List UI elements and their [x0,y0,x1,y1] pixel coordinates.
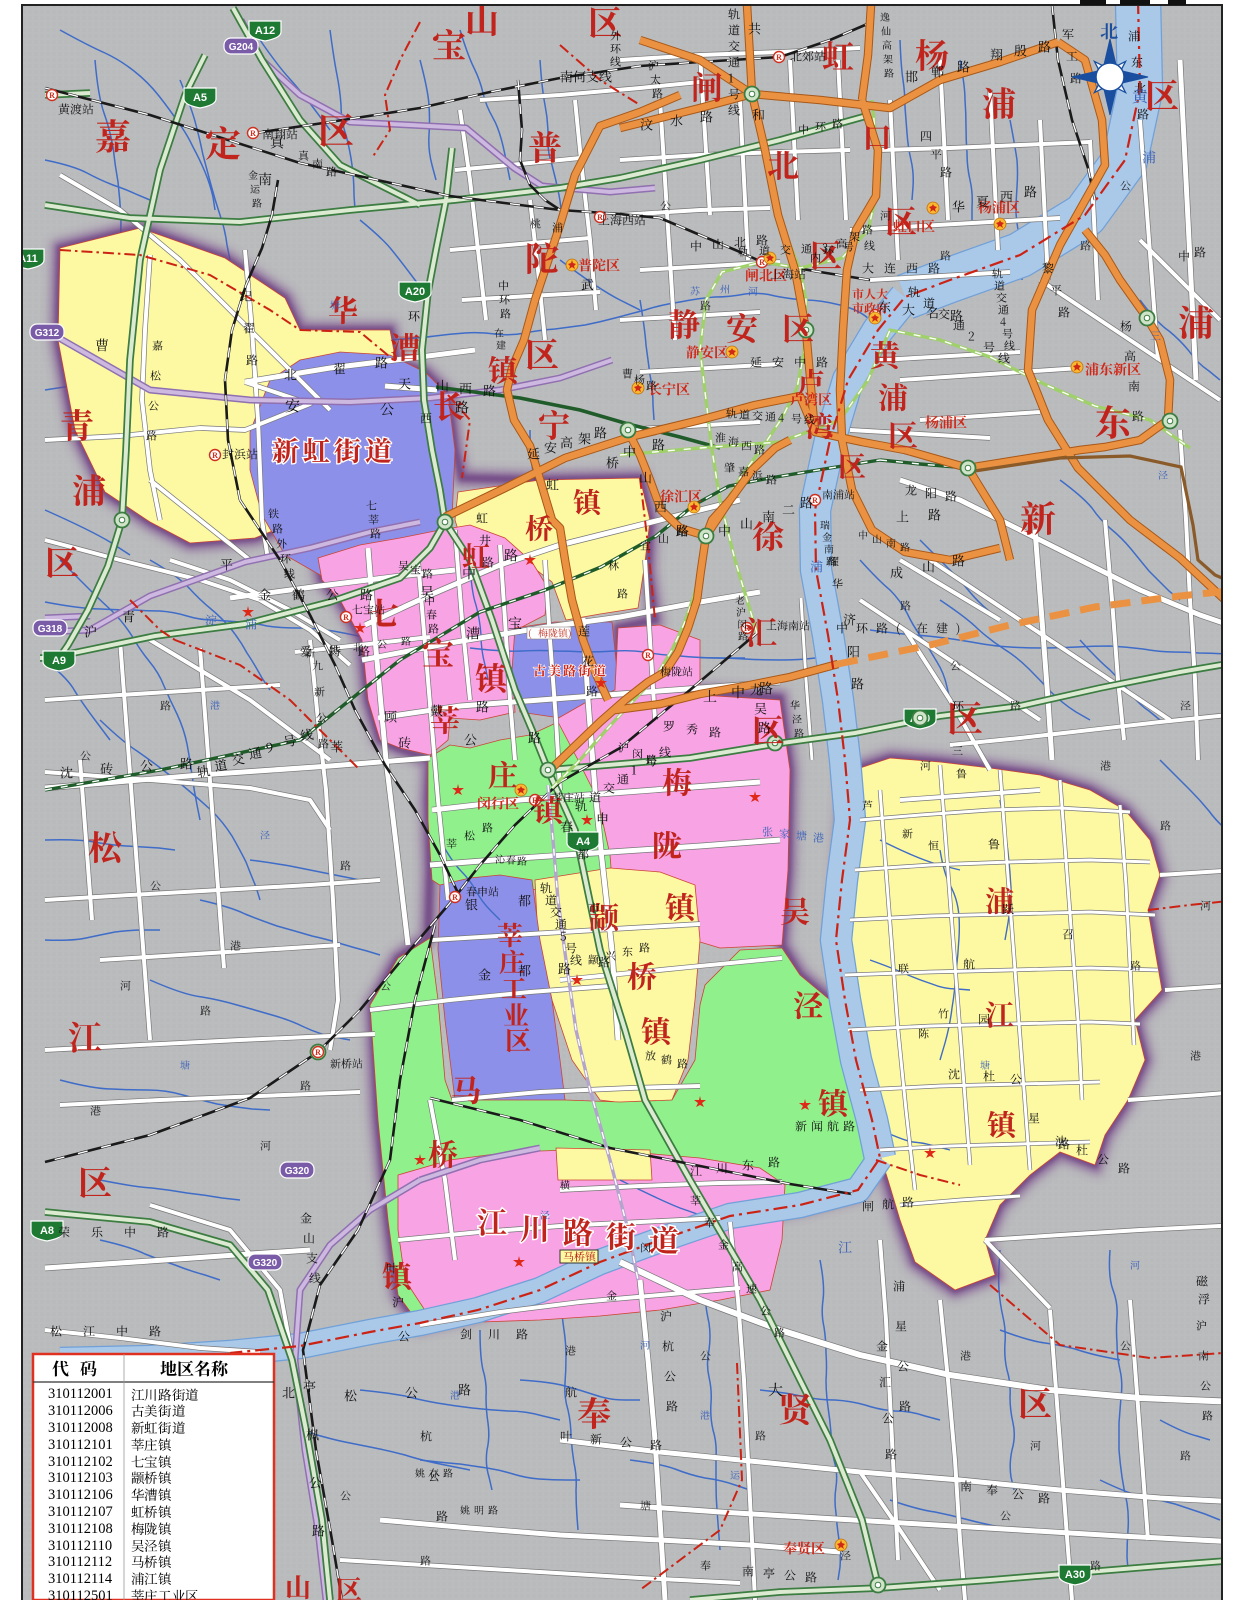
svg-text:A5: A5 [193,92,207,104]
svg-text:310112114: 310112114 [48,1571,113,1587]
svg-text:G318: G318 [38,624,63,635]
svg-text:A9: A9 [52,655,66,667]
svg-text:A12: A12 [255,25,275,37]
svg-text:R: R [343,613,349,622]
svg-text:R: R [776,53,782,62]
svg-text:G320: G320 [253,1258,278,1269]
svg-text:310112108: 310112108 [48,1521,113,1537]
svg-text:310112112: 310112112 [48,1554,112,1570]
svg-text:A4: A4 [576,836,591,848]
svg-text:R: R [812,496,818,505]
svg-text:A8: A8 [40,1225,54,1237]
svg-text:R: R [315,1048,321,1057]
svg-text:310112107: 310112107 [48,1504,113,1520]
svg-text:R: R [212,451,218,460]
svg-text:G320: G320 [285,1166,310,1177]
svg-text:310112008: 310112008 [48,1420,113,1436]
svg-text:310112103: 310112103 [48,1470,113,1486]
svg-text:R: R [597,213,603,222]
svg-text:310112110: 310112110 [48,1538,112,1554]
svg-text:A30: A30 [1065,1569,1085,1581]
svg-text:310112501: 310112501 [48,1588,113,1600]
svg-text:R: R [452,893,458,902]
svg-text:A20: A20 [405,286,425,298]
svg-text:310112106: 310112106 [48,1487,113,1503]
svg-text:G312: G312 [35,328,60,339]
svg-text:R: R [645,651,651,660]
svg-text:R: R [49,91,55,100]
svg-text:310112006: 310112006 [48,1403,113,1419]
svg-text:310112001: 310112001 [48,1386,113,1402]
svg-text:R: R [250,129,256,138]
svg-text:310112101: 310112101 [48,1437,113,1453]
svg-text:G204: G204 [229,42,254,53]
svg-text:310112102: 310112102 [48,1454,113,1470]
